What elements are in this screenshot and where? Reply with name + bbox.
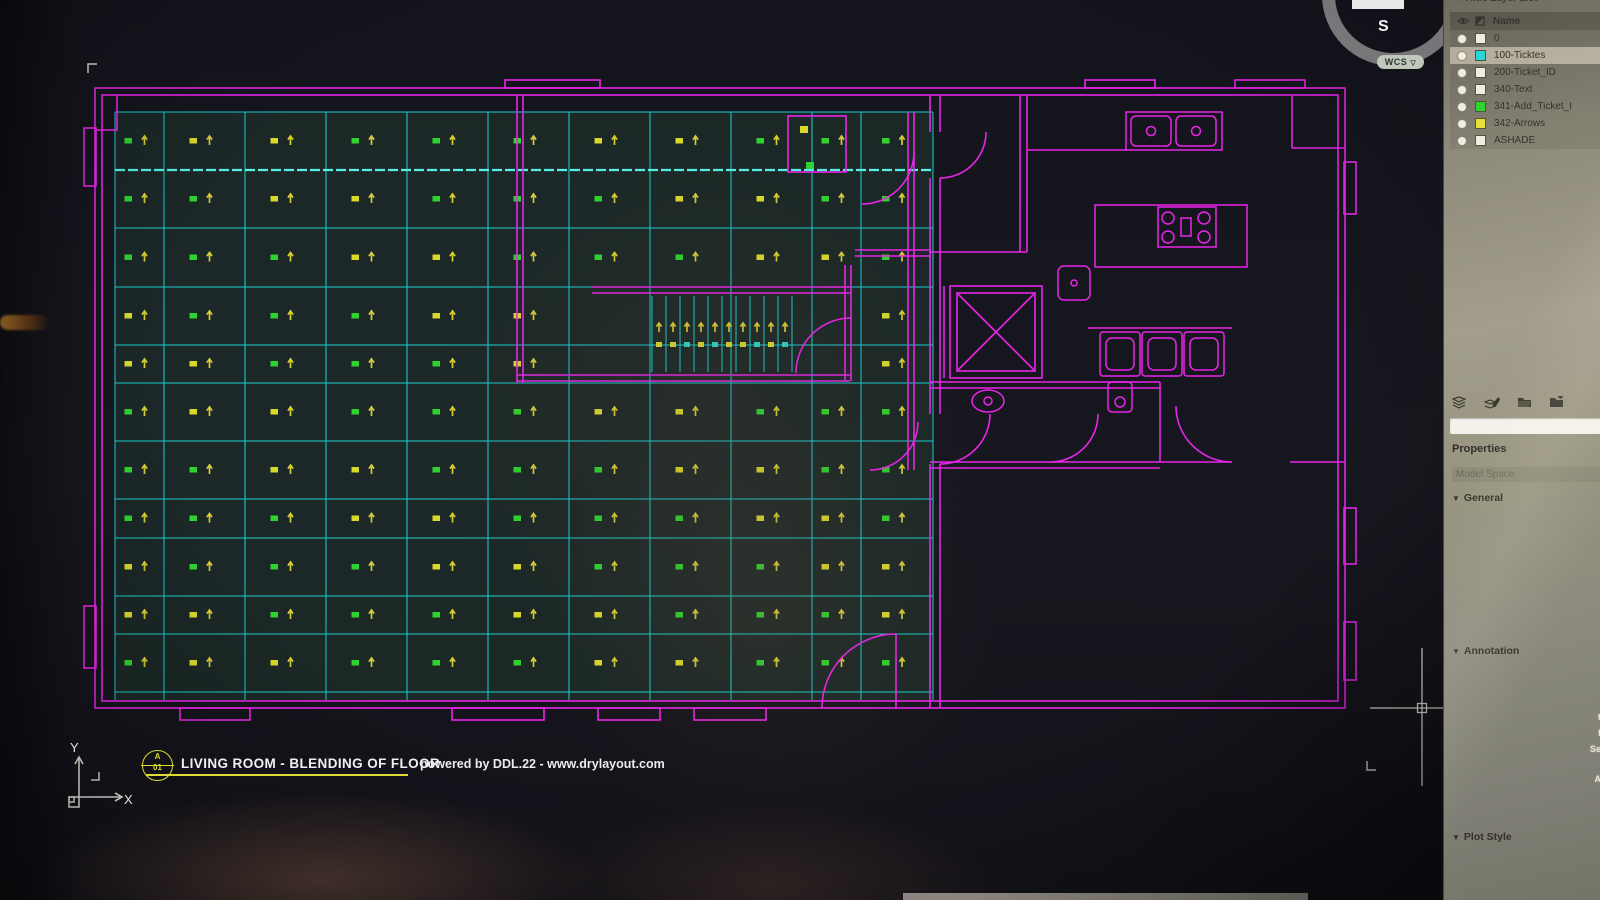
plan-title: LIVING ROOM - BLENDING OF FLOOR	[181, 756, 440, 771]
layer-name: ASHADE	[1494, 135, 1535, 146]
model-space-viewport[interactable]: S WCS ▽ A 01 LIVING ROOM - BLENDING OF F…	[0, 0, 1443, 900]
layer-toolbar	[1452, 396, 1592, 410]
layer-name: 100-Ticktes	[1494, 50, 1545, 61]
layer-row-0[interactable]: 0	[1450, 30, 1600, 47]
layer-row-200-Ticket_ID[interactable]: 200-Ticket_ID	[1450, 64, 1600, 81]
layer-row-100-Ticktes[interactable]: 100-Ticktes	[1450, 47, 1600, 64]
ucs-x-label: X	[124, 792, 133, 807]
layer-row-ASHADE[interactable]: ASHADE	[1450, 132, 1600, 149]
kitchen-island	[1095, 205, 1247, 267]
title-underline	[146, 774, 408, 776]
layer-on-indicator[interactable]	[1457, 68, 1467, 78]
section-plot-style[interactable]: ▼Plot Style	[1452, 831, 1512, 843]
visibility-eye-icon[interactable]	[1457, 16, 1469, 26]
layer-name: 342-Arrows	[1494, 118, 1545, 129]
layer-name: 341-Add_Ticket_I	[1494, 101, 1572, 112]
chevron-down-icon: ▽	[1410, 60, 1416, 67]
folder-icon[interactable]	[1517, 396, 1532, 410]
layer-color-swatch[interactable]	[1475, 135, 1486, 146]
cutoff-text-fragment: A	[1595, 774, 1600, 784]
layer-list-toggle[interactable]: ▼ Hide Layer List	[1453, 0, 1537, 4]
layer-search-input[interactable]	[1450, 418, 1600, 434]
section-annotation[interactable]: ▼Annotation	[1452, 645, 1519, 657]
grid-area-background	[115, 112, 933, 700]
triangle-down-icon: ▼	[1452, 647, 1460, 656]
layer-on-indicator[interactable]	[1457, 51, 1467, 61]
viewcube-face[interactable]	[1352, 0, 1404, 9]
properties-title: Properties	[1452, 443, 1506, 455]
layer-name: 200-Ticket_ID	[1494, 67, 1556, 78]
cutoff-text-fragment: Se	[1590, 744, 1600, 754]
layer-color-column-icon	[1475, 16, 1487, 26]
layer-name: 340-Text	[1494, 84, 1532, 95]
layer-color-swatch[interactable]	[1475, 101, 1486, 112]
layer-on-indicator[interactable]	[1457, 136, 1467, 146]
layers-properties-panel: ▼ Hide Layer List Name 0100-Ticktes200-T…	[1443, 0, 1600, 900]
layer-on-indicator[interactable]	[1457, 119, 1467, 129]
ucs-y-label: Y	[70, 740, 79, 755]
triangle-down-icon: ▼	[1453, 0, 1463, 4]
space-selector[interactable]: Model Space	[1452, 467, 1600, 482]
layer-on-indicator[interactable]	[1457, 85, 1467, 95]
crosshair-cursor	[1370, 648, 1443, 786]
layer-color-swatch[interactable]	[1475, 84, 1486, 95]
layer-row-342-Arrows[interactable]: 342-Arrows	[1450, 115, 1600, 132]
ucs-icon	[69, 757, 122, 807]
layer-row-341-Add_Ticket_I[interactable]: 341-Add_Ticket_I	[1450, 98, 1600, 115]
layer-list-header: Name	[1450, 12, 1600, 30]
cad-application-window: S WCS ▽ A 01 LIVING ROOM - BLENDING OF F…	[0, 0, 1600, 900]
plan-credit: powered by DDL.22 - www.drylayout.com	[420, 757, 665, 771]
kitchen-fixtures	[1058, 112, 1247, 376]
layer-color-swatch[interactable]	[1475, 67, 1486, 78]
folder-new-icon[interactable]	[1549, 396, 1564, 410]
detail-callout-badge: A 01	[142, 750, 173, 781]
layer-color-swatch[interactable]	[1475, 50, 1486, 61]
triangle-down-icon: ▼	[1452, 833, 1460, 842]
layer-edit-icon[interactable]	[1484, 396, 1500, 410]
layers-icon[interactable]	[1452, 396, 1467, 410]
layer-on-indicator[interactable]	[1457, 102, 1467, 112]
layer-list: Name 0100-Ticktes200-Ticket_ID340-Text34…	[1450, 12, 1600, 149]
elevator-x	[957, 293, 1035, 371]
layer-color-swatch[interactable]	[1475, 118, 1486, 129]
layer-name: 0	[1494, 33, 1500, 44]
layer-color-swatch[interactable]	[1475, 33, 1486, 44]
section-general[interactable]: ▼General	[1452, 492, 1503, 504]
layer-on-indicator[interactable]	[1457, 34, 1467, 44]
bathroom-fixtures	[972, 382, 1132, 412]
layer-row-340-Text[interactable]: 340-Text	[1450, 81, 1600, 98]
triangle-down-icon: ▼	[1452, 494, 1460, 503]
viewcube-south-label: S	[1378, 18, 1389, 36]
wcs-dropdown[interactable]: WCS ▽	[1377, 55, 1424, 69]
